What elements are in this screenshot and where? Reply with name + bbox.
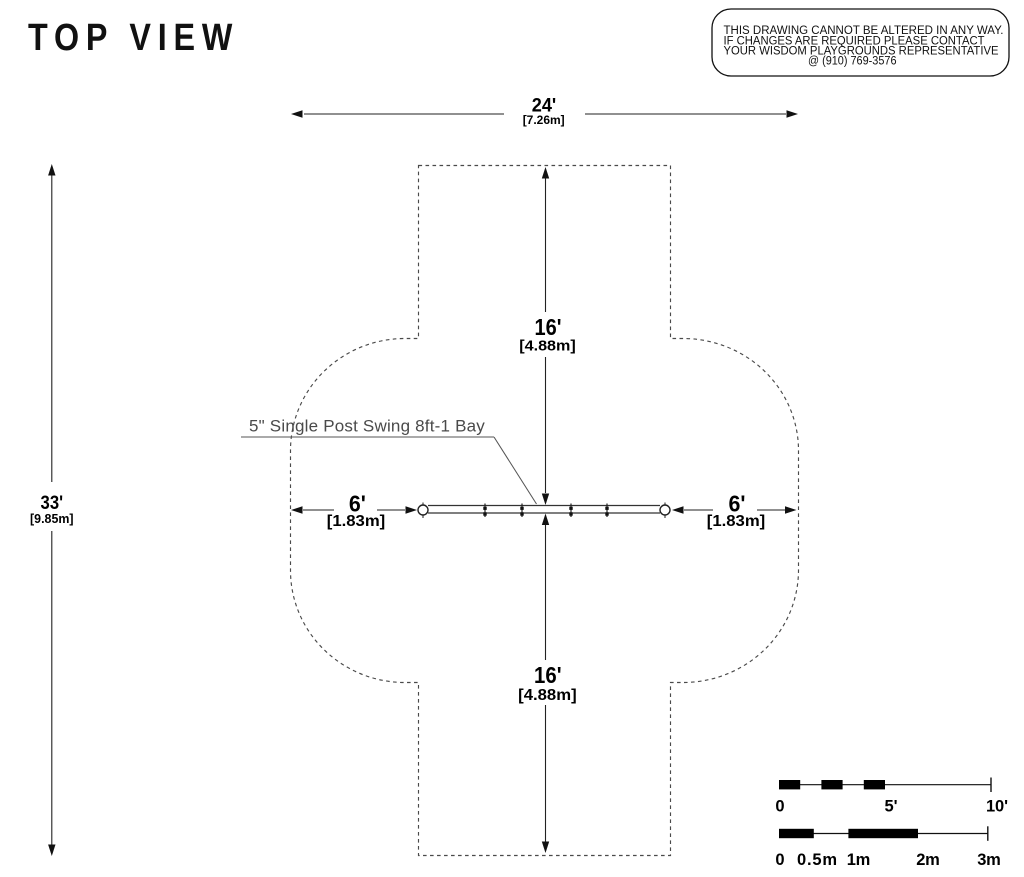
svg-text:[9.85m]: [9.85m] <box>30 512 74 526</box>
svg-text:[1.83m]: [1.83m] <box>327 513 386 530</box>
svg-text:[7.26m]: [7.26m] <box>523 113 565 127</box>
svg-text:16': 16' <box>534 662 562 688</box>
svg-text:0.5m: 0.5m <box>797 851 837 869</box>
svg-text:@ (910) 769-3576: @ (910) 769-3576 <box>808 56 897 68</box>
svg-text:3m: 3m <box>977 851 1001 869</box>
svg-text:TOP VIEW: TOP VIEW <box>28 17 239 59</box>
svg-text:[4.88m]: [4.88m] <box>519 338 576 355</box>
svg-text:0: 0 <box>775 851 784 869</box>
svg-text:10': 10' <box>986 798 1008 816</box>
svg-text:5" Single Post Swing 8ft-1 Bay: 5" Single Post Swing 8ft-1 Bay <box>249 417 485 436</box>
svg-text:[4.88m]: [4.88m] <box>518 687 577 704</box>
svg-text:5': 5' <box>885 798 898 816</box>
svg-text:2m: 2m <box>916 851 940 869</box>
svg-text:[1.83m]: [1.83m] <box>707 513 766 530</box>
svg-text:16': 16' <box>535 314 562 340</box>
svg-text:33': 33' <box>41 492 64 514</box>
svg-text:1m: 1m <box>847 851 871 869</box>
svg-text:0: 0 <box>775 798 784 816</box>
